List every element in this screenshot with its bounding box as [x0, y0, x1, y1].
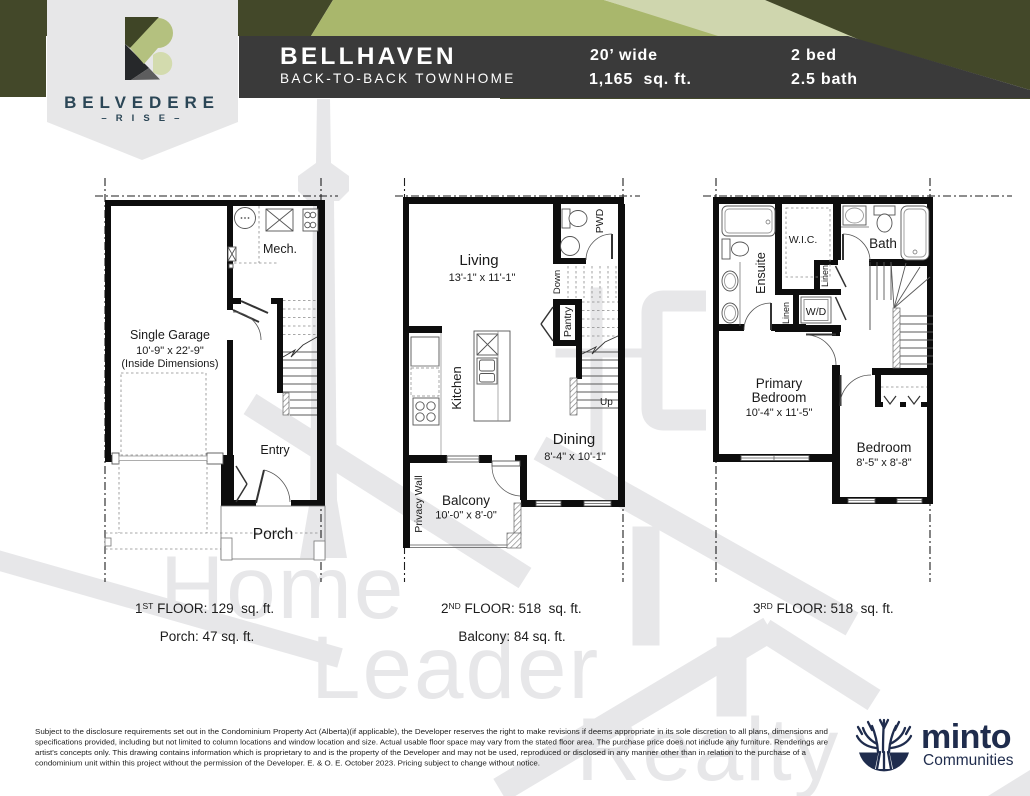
svg-text:Privacy Wall: Privacy Wall: [413, 475, 425, 532]
svg-text:Single Garage: Single Garage: [130, 328, 210, 342]
svg-text:20’ wide: 20’ wide: [590, 47, 658, 64]
svg-text:Dining: Dining: [553, 431, 596, 448]
svg-text:8'-5" x 8'-8": 8'-5" x 8'-8": [856, 457, 912, 469]
svg-text:10'-9" x 22'-9": 10'-9" x 22'-9": [136, 345, 204, 357]
svg-text:Pantry: Pantry: [562, 306, 574, 337]
svg-text:8'-4" x 10'-1": 8'-4" x 10'-1": [544, 451, 606, 463]
svg-text:condominium unit within this p: condominium unit within this project wit…: [35, 759, 540, 768]
svg-text:Bath: Bath: [869, 236, 897, 251]
svg-text:Porch: Porch: [253, 526, 294, 543]
svg-text:BACK-TO-BACK TOWNHOME: BACK-TO-BACK TOWNHOME: [280, 71, 516, 86]
svg-text:PWD: PWD: [594, 208, 606, 233]
svg-text:specifications provided, inclu: specifications provided, including but n…: [35, 738, 828, 747]
svg-text:10'-0" x 8'-0": 10'-0" x 8'-0": [435, 510, 497, 522]
svg-text:Kitchen: Kitchen: [449, 366, 464, 409]
svg-text:minto: minto: [921, 718, 1011, 756]
svg-text:(Inside Dimensions): (Inside Dimensions): [121, 358, 218, 370]
svg-text:– R I S E –: – R I S E –: [101, 113, 182, 124]
svg-text:Linen: Linen: [781, 302, 791, 324]
svg-text:Entry: Entry: [260, 443, 290, 457]
svg-text:2ND FLOOR: 518 sq. ft.: 2ND FLOOR: 518 sq. ft.: [441, 601, 582, 616]
svg-text:Balcony: 84 sq. ft.: Balcony: 84 sq. ft.: [458, 629, 565, 644]
svg-text:W/D: W/D: [806, 306, 827, 318]
svg-text:1ST FLOOR: 129 sq. ft.: 1ST FLOOR: 129 sq. ft.: [135, 601, 274, 616]
svg-text:BELVEDERE: BELVEDERE: [64, 93, 220, 112]
svg-text:BELLHAVEN: BELLHAVEN: [280, 43, 457, 70]
svg-text:1,165 sq. ft.: 1,165 sq. ft.: [589, 71, 692, 88]
svg-text:Communities: Communities: [923, 752, 1014, 769]
svg-text:13'-1" x 11'-1": 13'-1" x 11'-1": [449, 272, 516, 284]
svg-text:2.5 bath: 2.5 bath: [791, 71, 858, 88]
svg-text:Porch: 47 sq. ft.: Porch: 47 sq. ft.: [160, 629, 255, 644]
svg-text:W.I.C.: W.I.C.: [789, 234, 818, 246]
svg-text:Bedroom: Bedroom: [752, 390, 807, 405]
svg-text:Bedroom: Bedroom: [857, 440, 912, 455]
svg-text:Down: Down: [552, 270, 563, 294]
svg-text:Primary: Primary: [756, 376, 803, 391]
svg-text:Balcony: Balcony: [442, 493, 490, 508]
svg-text:Living: Living: [459, 252, 498, 269]
svg-text:2 bed: 2 bed: [791, 47, 837, 64]
svg-text:Mech.: Mech.: [263, 242, 297, 256]
svg-text:Up: Up: [600, 397, 613, 408]
svg-text:Linen: Linen: [820, 265, 830, 287]
svg-text:artist's concepts only. This d: artist's concepts only. This drawing con…: [35, 748, 807, 757]
svg-text:Subject to the disclosure requ: Subject to the disclosure requirements s…: [35, 727, 828, 736]
svg-text:10'-4" x 11'-5": 10'-4" x 11'-5": [746, 407, 813, 419]
svg-text:3RD FLOOR: 518 sq. ft.: 3RD FLOOR: 518 sq. ft.: [753, 601, 894, 616]
svg-text:Ensuite: Ensuite: [754, 252, 768, 294]
